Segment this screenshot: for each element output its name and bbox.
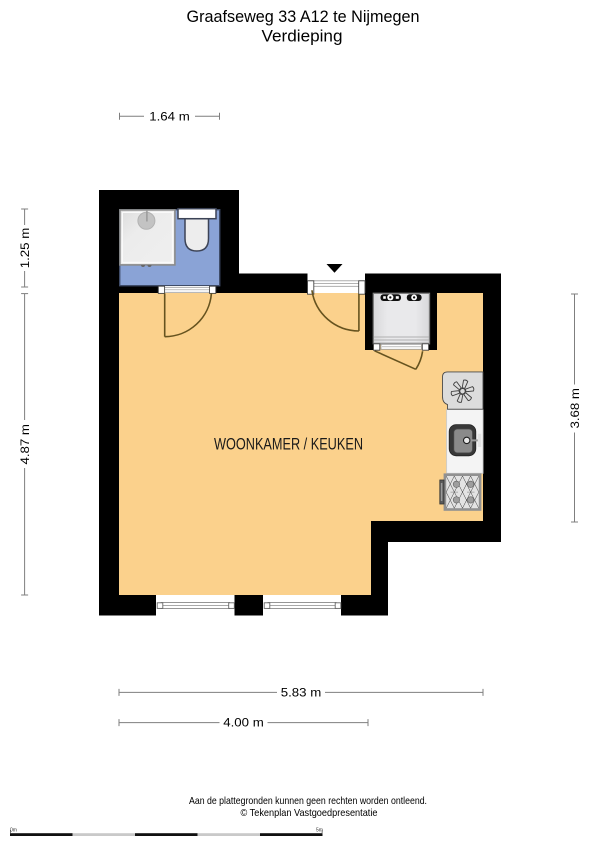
svg-text:Verdieping: Verdieping [262, 26, 343, 45]
svg-text:Graafseweg 33 A12 te Nijmegen: Graafseweg 33 A12 te Nijmegen [187, 7, 420, 26]
svg-text:1.25 m: 1.25 m [18, 228, 32, 269]
svg-text:0m: 0m [10, 828, 17, 834]
svg-text:4.87 m: 4.87 m [18, 424, 32, 465]
svg-text:WOONKAMER / KEUKEN: WOONKAMER / KEUKEN [214, 435, 363, 454]
svg-text:1.64 m: 1.64 m [149, 109, 190, 123]
svg-text:4.00 m: 4.00 m [223, 716, 264, 730]
svg-text:© Tekenplan Vastgoedpresentati: © Tekenplan Vastgoedpresentatie [241, 807, 378, 819]
svg-text:5m: 5m [316, 828, 323, 834]
svg-text:5.83 m: 5.83 m [281, 685, 322, 699]
svg-text:Aan de plattegronden kunnen ge: Aan de plattegronden kunnen geen rechten… [189, 795, 427, 807]
svg-text:3.68 m: 3.68 m [568, 388, 582, 429]
